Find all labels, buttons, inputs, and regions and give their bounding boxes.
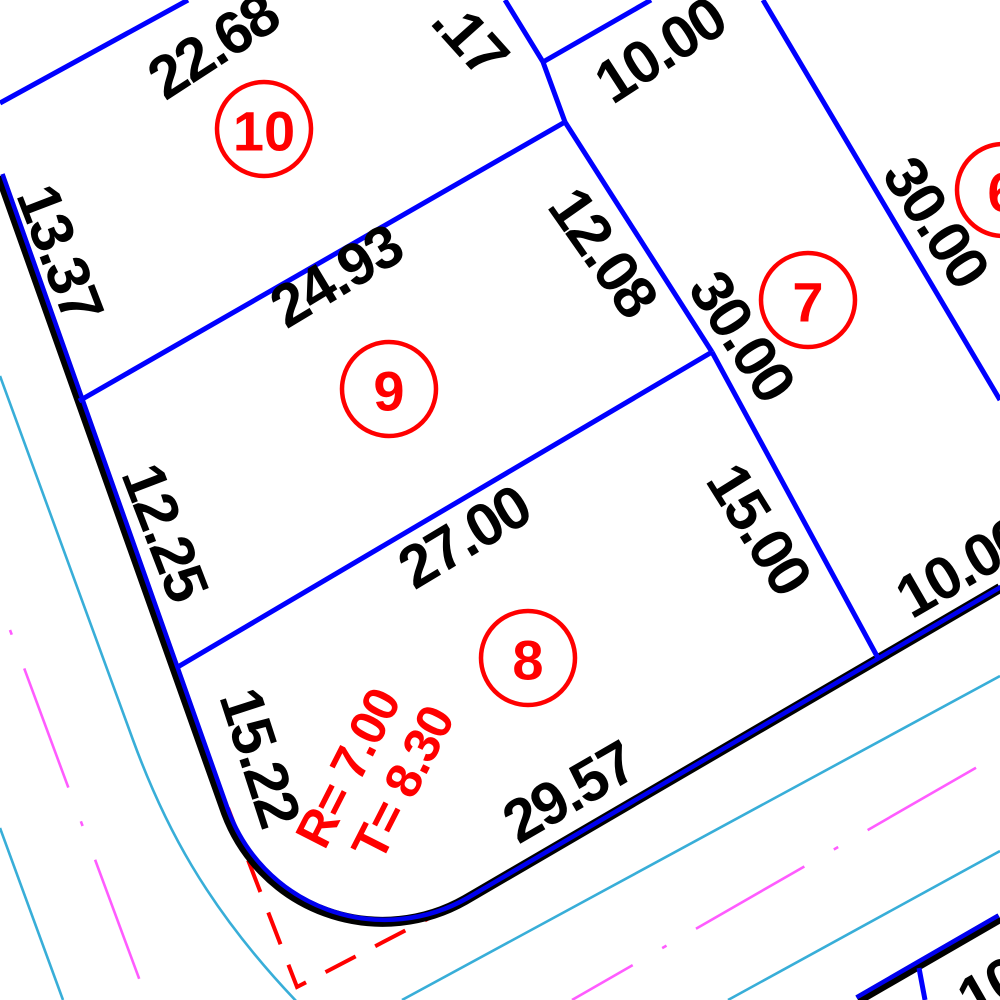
dimension-label-14: 10 <box>946 943 1000 1000</box>
lot-marker-8: 8 <box>481 611 575 705</box>
lot-number: 6 <box>987 161 1000 224</box>
dimension-label-9: 27.00 <box>387 472 542 602</box>
dimension-label-7: 13.37 <box>4 176 117 331</box>
layer-street-edges <box>0 174 1000 1000</box>
lot-number: 9 <box>373 360 404 423</box>
lot-line-tick-southeast <box>919 968 925 1000</box>
dimension-label-10: 15.00 <box>693 452 824 606</box>
lot-marker-9: 9 <box>342 342 436 436</box>
dimension-label-3: 24.93 <box>259 211 414 341</box>
rear-lot-line-north <box>505 0 565 122</box>
lot-number: 10 <box>233 100 295 163</box>
road-centerline-west <box>10 630 150 1000</box>
dimension-label-13: 10.00 <box>885 503 1000 631</box>
lot-number: 8 <box>512 629 543 692</box>
lot-number: 7 <box>792 271 823 334</box>
plat-svg: 22.68.1710.0024.9312.0830.0030.0013.3712… <box>0 0 1000 1000</box>
curb-line-southwest <box>0 828 63 1000</box>
dimension-label-5: 30.00 <box>676 259 809 413</box>
lot-marker-10: 10 <box>217 82 311 176</box>
lot7-lot6-line <box>763 0 1000 400</box>
dimension-label-6: 30.00 <box>870 145 1000 299</box>
dimension-label-1: .17 <box>419 0 521 89</box>
lot-marker-7: 7 <box>761 253 855 347</box>
curb-line-south <box>402 676 1000 1000</box>
subdivision-plat-drawing: 22.68.1710.0024.9312.0830.0030.0013.3712… <box>0 0 1000 1000</box>
dimension-label-2: 10.00 <box>583 0 737 116</box>
